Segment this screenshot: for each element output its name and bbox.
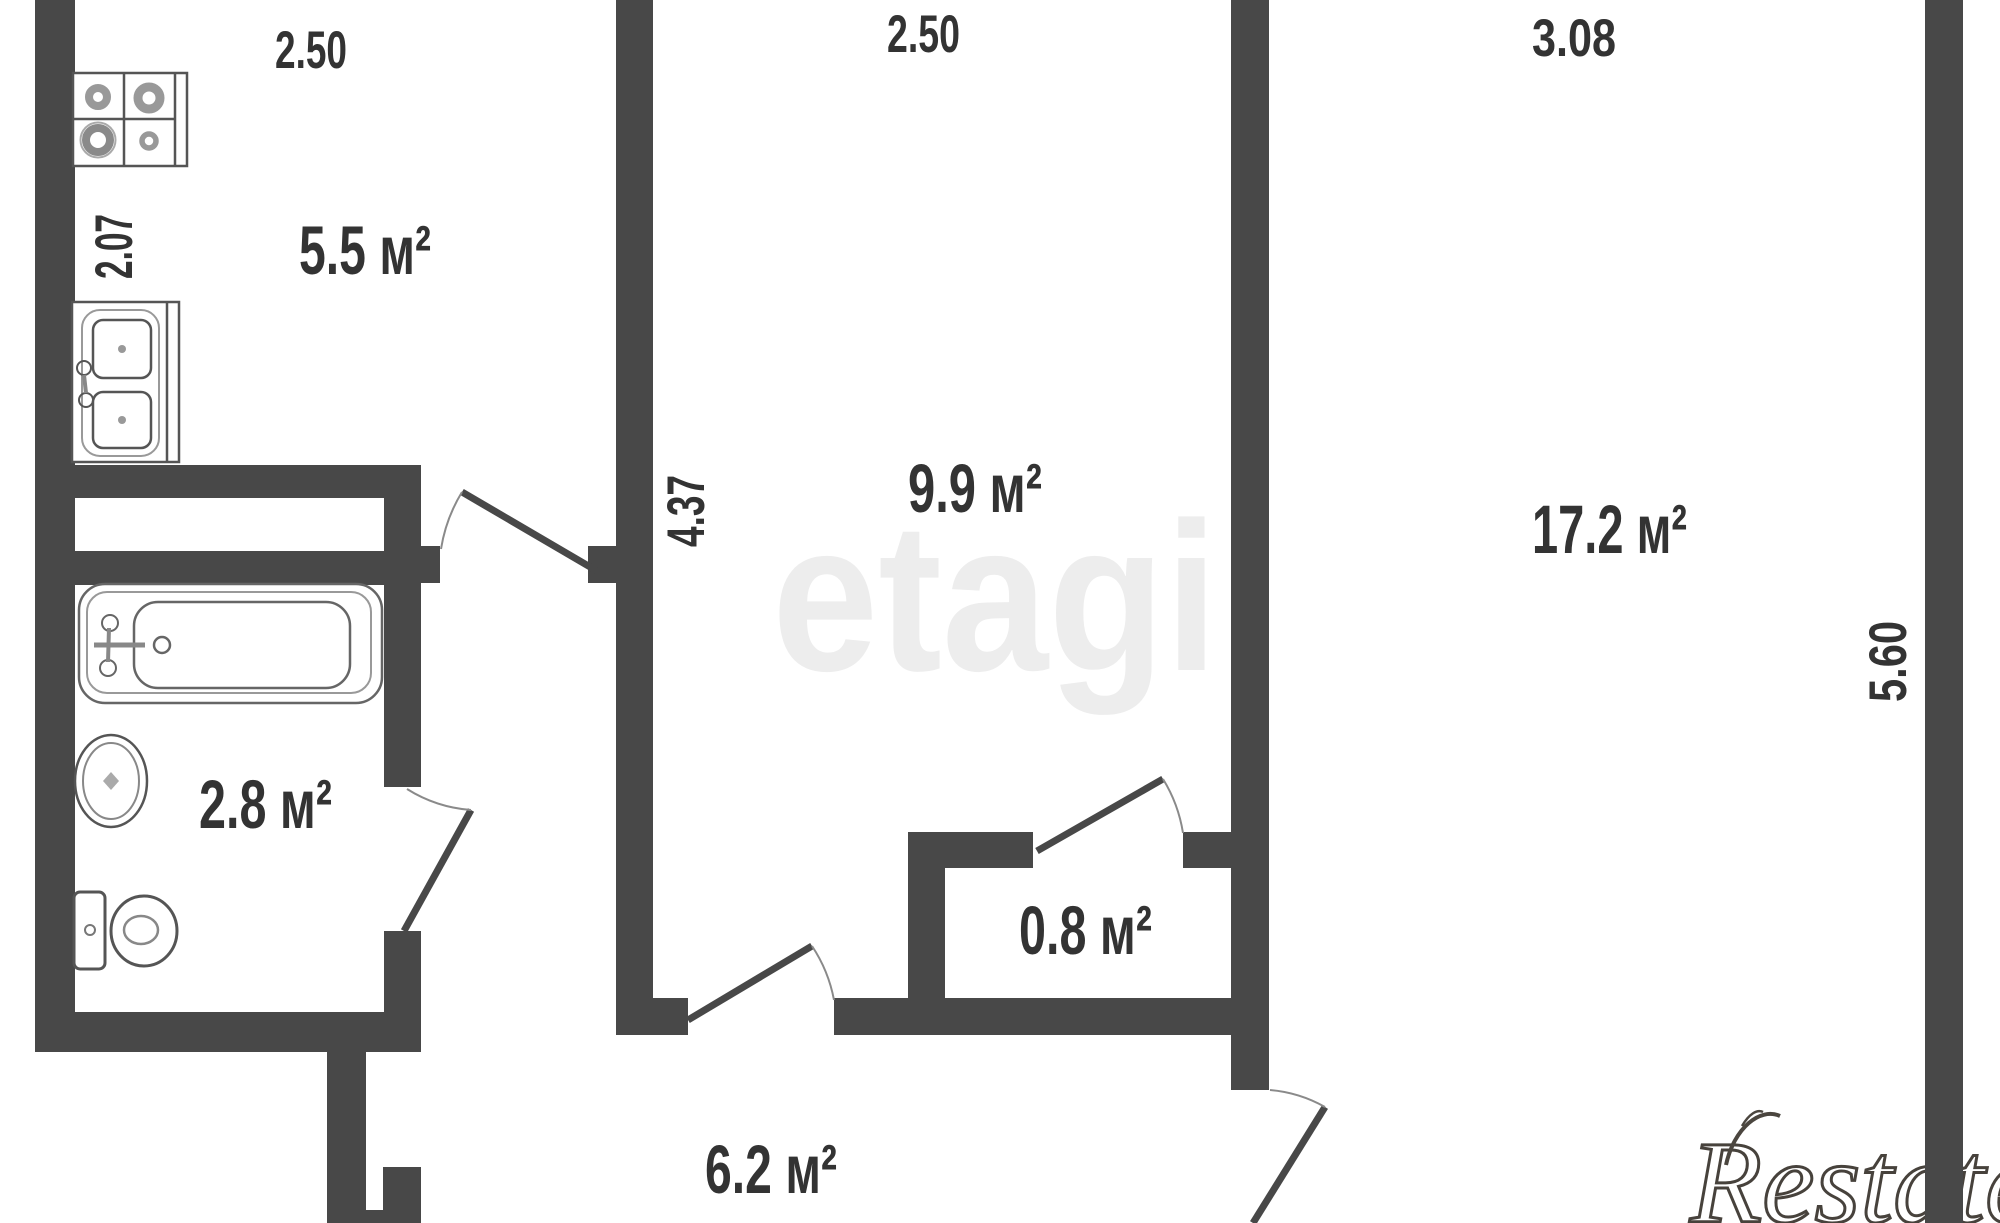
- svg-text:2.50: 2.50: [275, 21, 347, 80]
- svg-text:6.2 м²: 6.2 м²: [705, 1131, 837, 1208]
- svg-text:2.50: 2.50: [887, 5, 960, 64]
- svg-text:5.60: 5.60: [1859, 621, 1918, 702]
- svg-text:3.08: 3.08: [1532, 9, 1616, 68]
- svg-text:2.07: 2.07: [85, 214, 144, 279]
- svg-text:5.5 м²: 5.5 м²: [299, 212, 431, 289]
- svg-text:9.9 м²: 9.9 м²: [908, 450, 1042, 527]
- svg-text:2.8 м²: 2.8 м²: [199, 766, 332, 843]
- svg-text:0.8 м²: 0.8 м²: [1019, 892, 1152, 969]
- svg-text:4.37: 4.37: [657, 475, 716, 547]
- svg-text:17.2 м²: 17.2 м²: [1532, 491, 1687, 568]
